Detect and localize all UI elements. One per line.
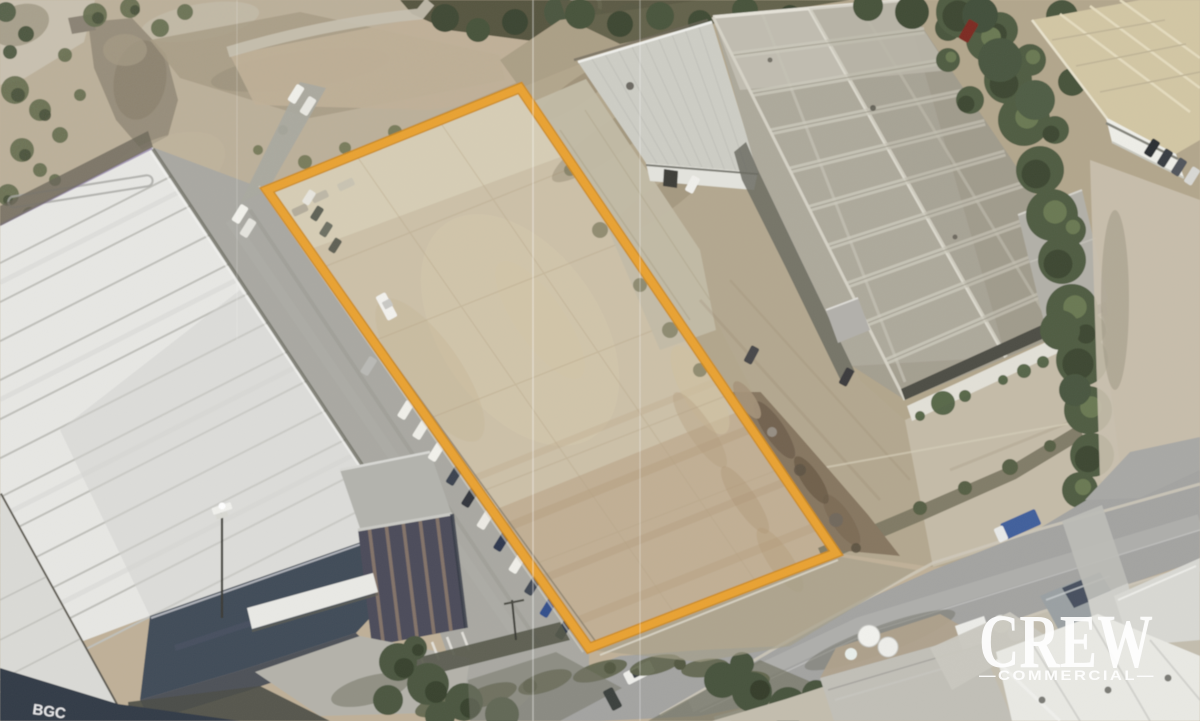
svg-text:—COMMERCIAL—: —COMMERCIAL— bbox=[979, 668, 1156, 683]
